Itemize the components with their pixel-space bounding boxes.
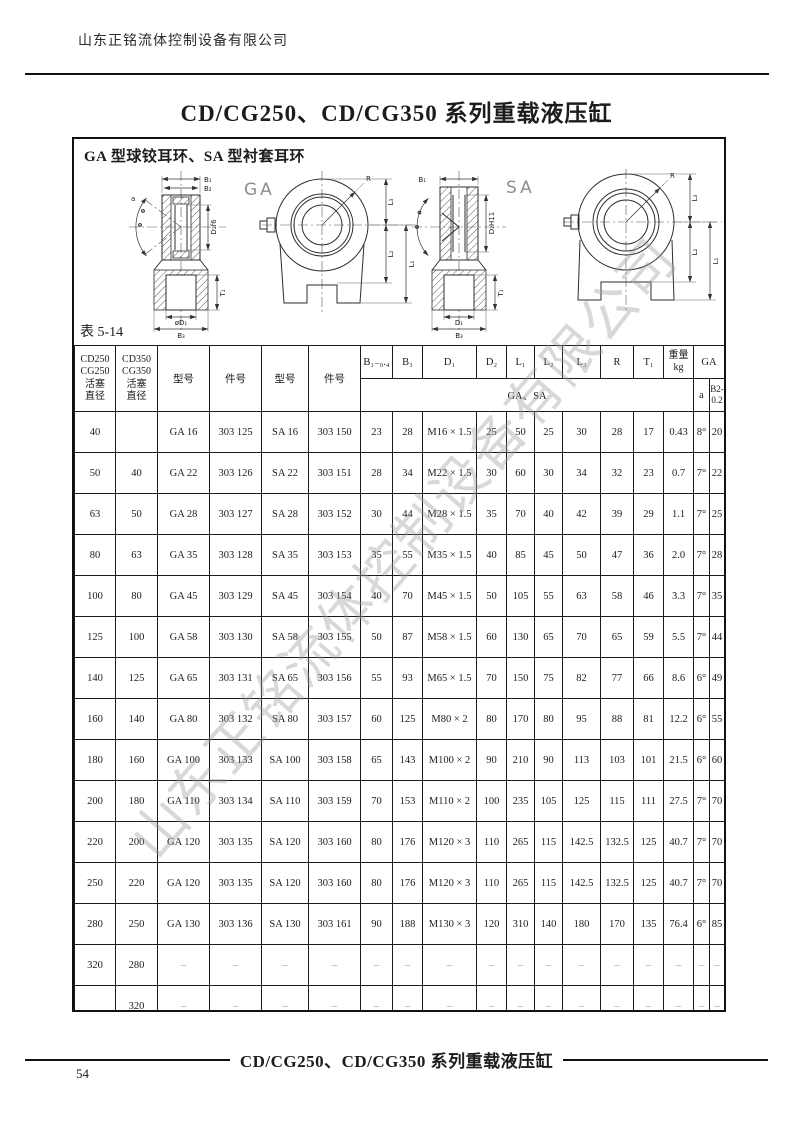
- catalog-page: 山东正铭流体控制设备有限公司 CD/CG250、CD/CG350 系列重载液压缸…: [0, 0, 793, 1123]
- company-name: 山东正铭流体控制设备有限公司: [78, 30, 288, 50]
- table-cell: 220: [75, 822, 116, 863]
- table-cell: 21.5: [664, 740, 694, 781]
- table-cell: –: [393, 945, 423, 986]
- table-cell: 3.3: [664, 576, 694, 617]
- dim-label-d2-ga: D₂f6: [210, 219, 218, 235]
- table-cell: 142.5: [563, 863, 601, 904]
- table-cell: 27.5: [664, 781, 694, 822]
- table-cell: 66: [634, 658, 664, 699]
- table-cell: 80: [116, 576, 158, 617]
- dim-label-l3-sa: L₃: [691, 194, 699, 201]
- table-cell: 130: [507, 617, 535, 658]
- table-cell: 30: [477, 453, 507, 494]
- table-cell: 80: [361, 863, 393, 904]
- col-header-l3: L₃: [563, 346, 601, 379]
- table-cell: –: [210, 945, 262, 986]
- table-cell: 176: [393, 822, 423, 863]
- table-cell: 142.5: [563, 822, 601, 863]
- table-cell: 7°: [694, 494, 710, 535]
- thread-hole: [166, 275, 196, 310]
- table-cell: 125: [116, 658, 158, 699]
- table-cell: 303 154: [309, 576, 361, 617]
- table-cell: 82: [563, 658, 601, 699]
- table-cell: 20: [710, 412, 725, 453]
- sa-view-title: SA: [506, 178, 535, 198]
- footer-rule-left: [25, 1059, 230, 1061]
- table-cell: GA 65: [158, 658, 210, 699]
- dim-label-l2-sa: L₂: [691, 248, 699, 255]
- table-cell: 40: [477, 535, 507, 576]
- dim-label-l1: L₁: [408, 260, 416, 267]
- table-cell: 100: [477, 781, 507, 822]
- col-header-piston-250: CD250 CG250 活塞 直径: [75, 346, 116, 412]
- table-cell: 22: [710, 453, 725, 494]
- table-cell: 28: [361, 453, 393, 494]
- dim-label-d1-ga: øD₁: [175, 319, 188, 327]
- col-header-b1: B₁₋₀.₄: [361, 346, 393, 379]
- table-cell: 125: [563, 781, 601, 822]
- table-cell: 110: [477, 863, 507, 904]
- table-cell: 55: [393, 535, 423, 576]
- table-cell: 42: [563, 494, 601, 535]
- table-cell: –: [601, 986, 634, 1013]
- table-cell: 303 158: [309, 740, 361, 781]
- table-cell: SA 130: [262, 904, 309, 945]
- dim-label-t1-sa: T₁: [497, 289, 505, 297]
- table-cell: 7°: [694, 453, 710, 494]
- table-cell: 80: [477, 699, 507, 740]
- table-cell: –: [535, 945, 563, 986]
- table-cell: 310: [507, 904, 535, 945]
- table-row: 40GA 16303 125SA 16303 1502328M16 × 1.52…: [75, 412, 725, 453]
- table-cell: 0.43: [664, 412, 694, 453]
- table-cell: SA 16: [262, 412, 309, 453]
- table-cell: 125: [634, 822, 664, 863]
- table-cell: 303 156: [309, 658, 361, 699]
- dim-label-b3-sa: B₃: [455, 332, 463, 340]
- table-cell: 75: [535, 658, 563, 699]
- table-cell: 95: [563, 699, 601, 740]
- col-header-part-ga: 件号: [210, 346, 262, 412]
- table-cell: 303 160: [309, 822, 361, 863]
- dim-label-b1: B₁: [204, 176, 212, 184]
- table-cell: 70: [477, 658, 507, 699]
- table-cell: 65: [601, 617, 634, 658]
- col-header-d2: D₂: [477, 346, 507, 379]
- table-cell: 176: [393, 863, 423, 904]
- table-cell: 6°: [694, 699, 710, 740]
- table-cell: SA 28: [262, 494, 309, 535]
- table-cell: –: [710, 986, 725, 1013]
- table-cell: M22 × 1.5: [423, 453, 477, 494]
- table-cell: GA 110: [158, 781, 210, 822]
- col-header-ga-sa: GA、SA: [361, 379, 694, 412]
- col-header-l2: L₂: [535, 346, 563, 379]
- table-cell: 280: [75, 904, 116, 945]
- table-cell: GA 35: [158, 535, 210, 576]
- table-cell: M28 × 1.5: [423, 494, 477, 535]
- table-cell: 29: [634, 494, 664, 535]
- header-row-1: CD250 CG250 活塞 直径 CD350 CG350 活塞 直径 型号 件…: [75, 346, 725, 379]
- table-cell: 303 135: [210, 863, 262, 904]
- table-cell: 103: [601, 740, 634, 781]
- table-cell: GA 120: [158, 863, 210, 904]
- table-cell: 70: [563, 617, 601, 658]
- table-cell: 44: [710, 617, 725, 658]
- table-cell: 63: [563, 576, 601, 617]
- table-cell: 180: [563, 904, 601, 945]
- table-cell: 115: [535, 863, 563, 904]
- table-cell: –: [664, 986, 694, 1013]
- table-cell: 160: [75, 699, 116, 740]
- table-cell: 87: [393, 617, 423, 658]
- ga-front-view: R L₃ L₂ L₁: [260, 171, 418, 315]
- table-cell: 77: [601, 658, 634, 699]
- sa-front-view: R L₃ L₂ L₁: [564, 169, 722, 313]
- table-cell: 34: [393, 453, 423, 494]
- table-cell: –: [361, 986, 393, 1013]
- col-header-model-sa: 型号: [262, 346, 309, 412]
- table-cell: 36: [634, 535, 664, 576]
- table-row: 200180GA 110303 134SA 110303 15970153M11…: [75, 781, 725, 822]
- table-cell: 80: [535, 699, 563, 740]
- table-cell: M16 × 1.5: [423, 412, 477, 453]
- table-cell: 115: [601, 781, 634, 822]
- table-cell: 25: [710, 494, 725, 535]
- table-cell: 60: [710, 740, 725, 781]
- table-cell: 60: [361, 699, 393, 740]
- table-cell: 40.7: [664, 863, 694, 904]
- table-cell: 303 127: [210, 494, 262, 535]
- table-row: 280250GA 130303 136SA 130303 16190188M13…: [75, 904, 725, 945]
- table-row: 125100GA 58303 130SA 58303 1555087M58 × …: [75, 617, 725, 658]
- ga-view-title: GA: [244, 180, 275, 200]
- footer: CD/CG250、CD/CG350 系列重载液压缸: [0, 1047, 793, 1072]
- table-cell: 6°: [694, 740, 710, 781]
- table-cell: 250: [75, 863, 116, 904]
- table-cell: 23: [634, 453, 664, 494]
- table-cell: 140: [116, 699, 158, 740]
- table-cell: 50: [116, 494, 158, 535]
- table-cell: –: [262, 945, 309, 986]
- sa-section-view: B₁ D₂H11 T₁: [412, 171, 506, 340]
- table-cell: 120: [477, 904, 507, 945]
- table-cell: 320: [116, 986, 158, 1013]
- table-cell: 44: [393, 494, 423, 535]
- table-cell: 88: [601, 699, 634, 740]
- table-cell: GA 130: [158, 904, 210, 945]
- table-cell: 188: [393, 904, 423, 945]
- table-cell: –: [601, 945, 634, 986]
- table-cell: –: [535, 986, 563, 1013]
- table-cell: M120 × 3: [423, 863, 477, 904]
- table-cell: 47: [601, 535, 634, 576]
- table-cell: –: [664, 945, 694, 986]
- table-cell: SA 58: [262, 617, 309, 658]
- ga-section-view: B₁ B₂ D₂f6 a: [129, 171, 227, 340]
- table-cell: SA 35: [262, 535, 309, 576]
- table-cell: 303 128: [210, 535, 262, 576]
- table-cell: 111: [634, 781, 664, 822]
- table-cell: –: [477, 986, 507, 1013]
- table-cell: 35: [710, 576, 725, 617]
- table-cell: 1.1: [664, 494, 694, 535]
- table-cell: 8.6: [664, 658, 694, 699]
- table-cell: 280: [116, 945, 158, 986]
- table-cell: SA 110: [262, 781, 309, 822]
- table-cell: 49: [710, 658, 725, 699]
- table-cell: 23: [361, 412, 393, 453]
- dim-label-d2-sa: D₂H11: [488, 212, 496, 234]
- table-cell: 40: [535, 494, 563, 535]
- table-cell: SA 65: [262, 658, 309, 699]
- dim-label-b3: B₃: [177, 332, 185, 340]
- table-cell: 153: [393, 781, 423, 822]
- table-row: 6350GA 28303 127SA 28303 1523044M28 × 1.…: [75, 494, 725, 535]
- table-cell: M80 × 2: [423, 699, 477, 740]
- table-cell: –: [694, 945, 710, 986]
- table-cell: 303 161: [309, 904, 361, 945]
- table-cell: [75, 986, 116, 1013]
- dim-label-l3: L₃: [387, 198, 395, 205]
- table-cell: M45 × 1.5: [423, 576, 477, 617]
- table-cell: M110 × 2: [423, 781, 477, 822]
- table-cell: 70: [507, 494, 535, 535]
- table-cell: 39: [601, 494, 634, 535]
- table-cell: GA 28: [158, 494, 210, 535]
- table-cell: 63: [75, 494, 116, 535]
- table-cell: 7°: [694, 576, 710, 617]
- table-cell: 93: [393, 658, 423, 699]
- table-cell: M65 × 1.5: [423, 658, 477, 699]
- table-cell: 303 151: [309, 453, 361, 494]
- table-cell: 58: [601, 576, 634, 617]
- table-cell: 303 136: [210, 904, 262, 945]
- table-cell: –: [563, 945, 601, 986]
- table-number-label: 表 5-14: [80, 321, 123, 341]
- table-row: 140125GA 65303 131SA 65303 1565593M65 × …: [75, 658, 725, 699]
- table-cell: 80: [361, 822, 393, 863]
- table-cell: 110: [477, 822, 507, 863]
- col-header-d1: D₁: [423, 346, 477, 379]
- table-row: 8063GA 35303 128SA 35303 1533555M35 × 1.…: [75, 535, 725, 576]
- table-cell: 2.0: [664, 535, 694, 576]
- table-cell: 55: [361, 658, 393, 699]
- table-cell: –: [507, 986, 535, 1013]
- dim-label-t1: T₁: [219, 289, 227, 297]
- table-cell: 28: [710, 535, 725, 576]
- table-cell: –: [634, 986, 664, 1013]
- table-cell: 5.5: [664, 617, 694, 658]
- table-cell: 45: [535, 535, 563, 576]
- table-cell: 50: [75, 453, 116, 494]
- table-cell: 135: [634, 904, 664, 945]
- table-cell: –: [361, 945, 393, 986]
- table-cell: 65: [361, 740, 393, 781]
- table-cell: 35: [361, 535, 393, 576]
- table-cell: 105: [507, 576, 535, 617]
- table-cell: 265: [507, 822, 535, 863]
- table-cell: 303 131: [210, 658, 262, 699]
- table-cell: –: [158, 986, 210, 1013]
- table-cell: 303 126: [210, 453, 262, 494]
- table-cell: 55: [535, 576, 563, 617]
- col-header-ga-group: GA: [694, 346, 725, 379]
- footer-title: CD/CG250、CD/CG350 系列重载液压缸: [230, 1047, 563, 1072]
- table-cell: 25: [477, 412, 507, 453]
- table-row: 320280––––––––––––––––: [75, 945, 725, 986]
- table-cell: 303 150: [309, 412, 361, 453]
- table-cell: 303 153: [309, 535, 361, 576]
- table-cell: –: [563, 986, 601, 1013]
- table-cell: 160: [116, 740, 158, 781]
- table-cell: 40: [116, 453, 158, 494]
- table-cell: 125: [75, 617, 116, 658]
- table-cell: GA 16: [158, 412, 210, 453]
- table-cell: 303 157: [309, 699, 361, 740]
- table-cell: 200: [75, 781, 116, 822]
- table-cell: 60: [507, 453, 535, 494]
- table-cell: M130 × 3: [423, 904, 477, 945]
- table-cell: GA 22: [158, 453, 210, 494]
- table-cell: –: [210, 986, 262, 1013]
- table-cell: 90: [535, 740, 563, 781]
- table-cell: 85: [710, 904, 725, 945]
- table-cell: 35: [477, 494, 507, 535]
- table-cell: GA 80: [158, 699, 210, 740]
- table-cell: –: [423, 986, 477, 1013]
- table-cell: 115: [535, 822, 563, 863]
- table-cell: 220: [116, 863, 158, 904]
- col-header-part-sa: 件号: [309, 346, 361, 412]
- header-rule: [25, 73, 769, 75]
- table-cell: 50: [507, 412, 535, 453]
- table-cell: –: [393, 986, 423, 1013]
- table-cell: 303 135: [210, 822, 262, 863]
- table-cell: 12.2: [664, 699, 694, 740]
- table-cell: 40.7: [664, 822, 694, 863]
- col-header-model-ga: 型号: [158, 346, 210, 412]
- table-cell: 303 152: [309, 494, 361, 535]
- col-header-weight: 重量 kg: [664, 346, 694, 379]
- table-cell: 55: [710, 699, 725, 740]
- table-cell: 76.4: [664, 904, 694, 945]
- table-cell: GA 45: [158, 576, 210, 617]
- dim-label-angle: a: [131, 195, 135, 203]
- table-cell: –: [710, 945, 725, 986]
- table-cell: 90: [361, 904, 393, 945]
- table-cell: SA 100: [262, 740, 309, 781]
- technical-drawings: GA SA B₁ B₂: [74, 165, 724, 343]
- table-cell: 235: [507, 781, 535, 822]
- table-cell: SA 120: [262, 863, 309, 904]
- col-header-b3: B₃: [393, 346, 423, 379]
- spec-table-body: 40GA 16303 125SA 16303 1502328M16 × 1.52…: [75, 412, 725, 1013]
- table-cell: 303 125: [210, 412, 262, 453]
- table-cell: 30: [535, 453, 563, 494]
- table-cell: 70: [361, 781, 393, 822]
- table-cell: SA 22: [262, 453, 309, 494]
- table-cell: –: [477, 945, 507, 986]
- table-row: 320––––––––––––––––: [75, 986, 725, 1013]
- table-row: 10080GA 45303 129SA 45303 1544070M45 × 1…: [75, 576, 725, 617]
- table-cell: 6°: [694, 904, 710, 945]
- table-cell: GA 120: [158, 822, 210, 863]
- table-cell: M100 × 2: [423, 740, 477, 781]
- table-cell: 25: [535, 412, 563, 453]
- table-cell: 303 129: [210, 576, 262, 617]
- table-cell: 100: [116, 617, 158, 658]
- table-cell: 320: [75, 945, 116, 986]
- table-cell: 101: [634, 740, 664, 781]
- table-cell: 40: [361, 576, 393, 617]
- table-cell: 250: [116, 904, 158, 945]
- table-cell: 70: [710, 781, 725, 822]
- table-cell: 30: [361, 494, 393, 535]
- table-cell: 170: [507, 699, 535, 740]
- table-cell: 30: [563, 412, 601, 453]
- table-cell: 113: [563, 740, 601, 781]
- table-cell: 210: [507, 740, 535, 781]
- table-cell: 180: [116, 781, 158, 822]
- page-title: CD/CG250、CD/CG350 系列重载液压缸: [0, 94, 793, 128]
- table-cell: 59: [634, 617, 664, 658]
- dim-label-l2: L₂: [387, 250, 395, 257]
- table-cell: [116, 412, 158, 453]
- table-cell: 70: [710, 822, 725, 863]
- table-cell: 7°: [694, 822, 710, 863]
- table-cell: SA 80: [262, 699, 309, 740]
- table-cell: GA 58: [158, 617, 210, 658]
- dim-label-d1-sa: D₁: [455, 319, 463, 327]
- table-row: 160140GA 80303 132SA 80303 15760125M80 ×…: [75, 699, 725, 740]
- table-row: 5040GA 22303 126SA 22303 1512834M22 × 1.…: [75, 453, 725, 494]
- table-cell: 132.5: [601, 863, 634, 904]
- table-cell: 180: [75, 740, 116, 781]
- table-cell: –: [262, 986, 309, 1013]
- table-cell: 140: [75, 658, 116, 699]
- table-cell: 28: [601, 412, 634, 453]
- table-cell: –: [507, 945, 535, 986]
- table-cell: 6°: [694, 658, 710, 699]
- dim-label-l1-sa: L₁: [712, 257, 720, 264]
- col-header-t1: T₁: [634, 346, 664, 379]
- table-cell: 40: [75, 412, 116, 453]
- table-cell: M35 × 1.5: [423, 535, 477, 576]
- dim-label-r-sa: R: [670, 172, 675, 180]
- table-cell: 7°: [694, 617, 710, 658]
- table-row: 250220GA 120303 135SA 120303 16080176M12…: [75, 863, 725, 904]
- table-cell: 0.7: [664, 453, 694, 494]
- table-cell: 303 159: [309, 781, 361, 822]
- table-cell: 303 132: [210, 699, 262, 740]
- col-header-r: R: [601, 346, 634, 379]
- table-row: 180160GA 100303 133SA 100303 15865143M10…: [75, 740, 725, 781]
- col-header-piston-350: CD350 CG350 活塞 直径: [116, 346, 158, 412]
- table-cell: 150: [507, 658, 535, 699]
- table-cell: 105: [535, 781, 563, 822]
- table-cell: 200: [116, 822, 158, 863]
- table-cell: –: [158, 945, 210, 986]
- table-cell: 265: [507, 863, 535, 904]
- table-cell: –: [634, 945, 664, 986]
- table-cell: 50: [361, 617, 393, 658]
- table-cell: 143: [393, 740, 423, 781]
- table-cell: 303 160: [309, 863, 361, 904]
- footer-rule-right: [563, 1059, 768, 1061]
- table-cell: 125: [634, 863, 664, 904]
- table-cell: –: [309, 986, 361, 1013]
